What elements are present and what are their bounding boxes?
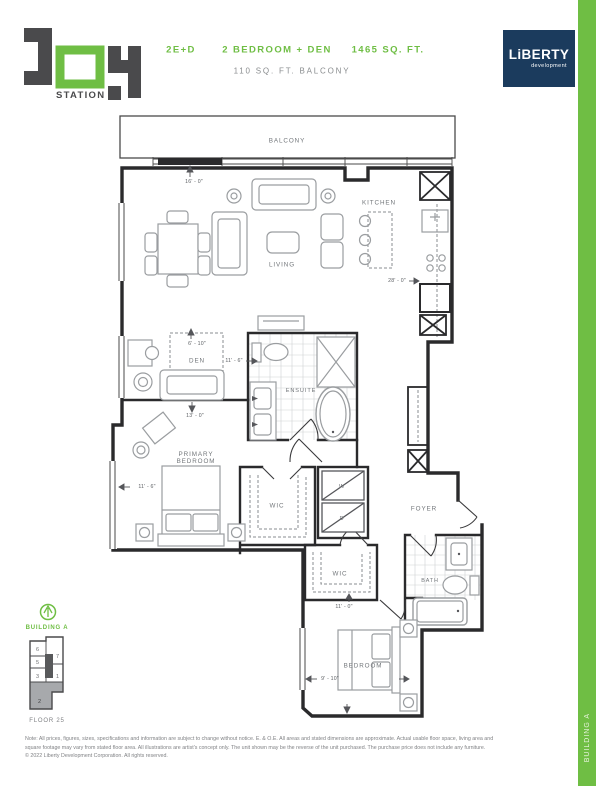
dim-den-width: 6' - 10"	[188, 341, 206, 347]
label-bedroom: BEDROOM	[344, 663, 383, 670]
keyplan-unit-number: 7	[56, 654, 59, 660]
dim-kitchen-run: 28' - 0"	[388, 278, 406, 284]
keyplan-unit-number: 3	[36, 674, 39, 680]
label-living: LIVING	[269, 262, 295, 269]
dining-table	[158, 224, 198, 274]
keyplan-core	[45, 654, 53, 678]
label-wic-primary: WIC	[270, 503, 285, 510]
dim-living-width: 16' - 0"	[185, 179, 203, 185]
keyplan-highlighted-unit	[30, 682, 63, 709]
keyplan-unit-number: 1	[56, 674, 59, 680]
label-kitchen: KITCHEN	[362, 200, 396, 207]
keyplan-unit-number: 5	[36, 660, 39, 666]
dim-bedroom-width: 9' - 10"	[321, 676, 339, 682]
disclaimer-line2: square footage may vary from stated floo…	[25, 744, 570, 753]
label-den: DEN	[189, 358, 205, 365]
label-bath: BATH	[421, 578, 439, 584]
wall-segment	[158, 158, 222, 165]
console-table	[258, 316, 304, 330]
keyplan-floor-label: FLOOR 25	[29, 718, 64, 724]
washer-dryer	[322, 471, 364, 532]
disclaimer: Note: All prices, figures, sizes, specif…	[25, 735, 570, 761]
label-wic-bedroom: WIC	[333, 571, 348, 578]
coffee-table	[267, 232, 299, 253]
keyplan-unit-number: 6	[36, 647, 39, 653]
label-dryer: D	[339, 516, 344, 522]
armchair	[321, 242, 343, 268]
dim-bedroom-depth: 11' - 0"	[335, 604, 352, 610]
primary-chair	[143, 412, 176, 444]
label-balcony: BALCONY	[269, 138, 305, 145]
fridge	[420, 284, 450, 312]
label-primary-bedroom: PRIMARY BEDROOM	[177, 451, 216, 465]
floorplan-sheet: JOY STATION 2E+D 2 BEDROOM + DEN 1465 SQ…	[0, 0, 600, 786]
disclaimer-line1: Note: All prices, figures, sizes, specif…	[25, 735, 570, 744]
kitchen-island	[368, 212, 392, 268]
armchair	[321, 214, 343, 240]
label-washer: W	[339, 484, 345, 490]
keyplan-unit-number-highlighted: 2	[38, 699, 41, 705]
label-ensuite: ENSUITE	[286, 388, 317, 394]
disclaimer-line3: © 2022 Liberty Development Corporation. …	[25, 752, 570, 761]
label-foyer: FOYER	[411, 506, 437, 513]
dim-primary-width: 11' - 6"	[138, 484, 155, 490]
dim-den-depth: 11' - 6"	[225, 358, 242, 364]
keyplan-graphic: 6 7 5 3 1 2	[30, 605, 63, 710]
keyplan-building-label: BUILDING A	[26, 625, 69, 631]
bath-toilet	[443, 576, 467, 594]
dim-den-length: 13' - 0"	[186, 413, 204, 419]
